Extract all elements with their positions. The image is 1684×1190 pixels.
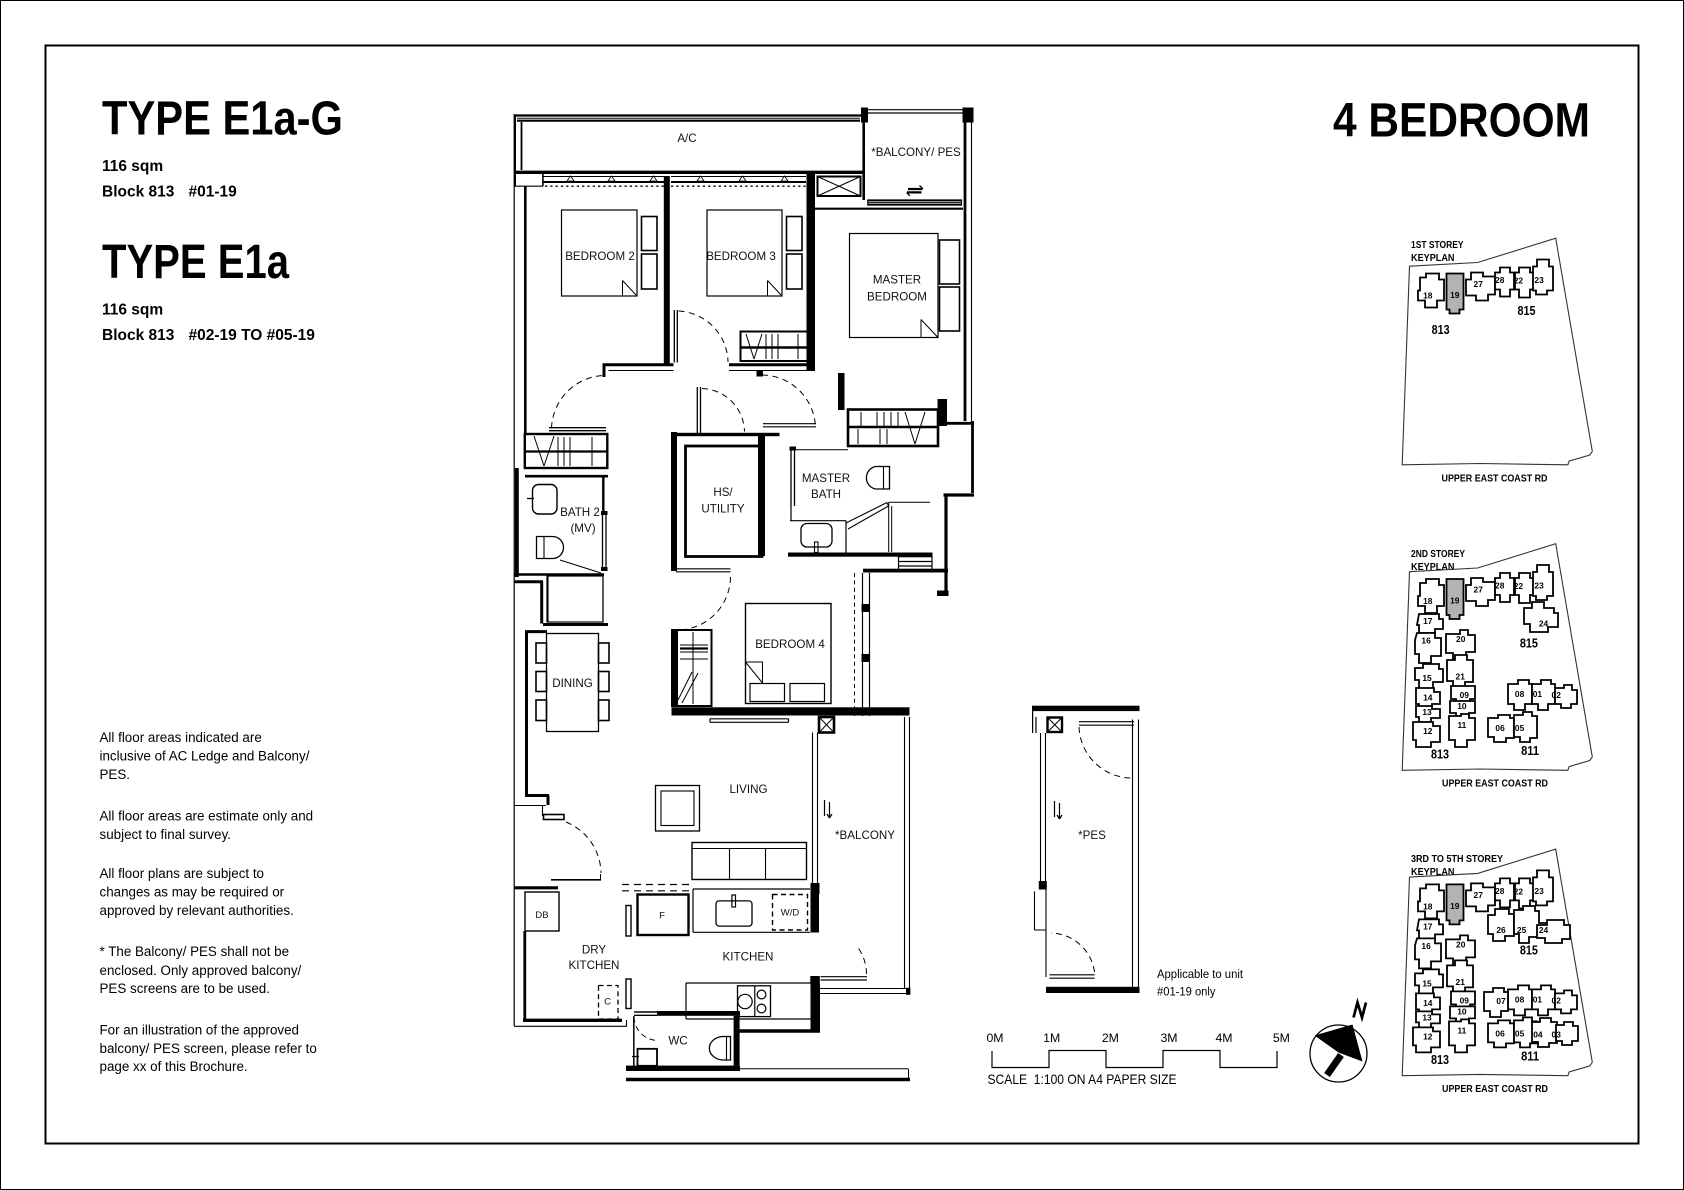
svg-text:*PES: *PES bbox=[1078, 829, 1106, 842]
svg-text:(MV): (MV) bbox=[570, 522, 595, 535]
svg-text:03: 03 bbox=[1552, 1030, 1562, 1040]
svg-text:Applicable to unit: Applicable to unit bbox=[1157, 967, 1244, 981]
svg-text:W/D: W/D bbox=[781, 908, 800, 919]
svg-text:All floor areas are estimate o: All floor areas are estimate only and bbox=[100, 809, 314, 824]
svg-text:4 BEDROOM: 4 BEDROOM bbox=[1333, 94, 1590, 148]
svg-text:enclosed. Only approved balcon: enclosed. Only approved balcony/ bbox=[100, 963, 302, 978]
svg-text:page xx of this Brochure.: page xx of this Brochure. bbox=[100, 1059, 248, 1074]
svg-text:KEYPLAN: KEYPLAN bbox=[1411, 252, 1455, 264]
svg-text:BEDROOM 3: BEDROOM 3 bbox=[706, 250, 776, 263]
svg-text:UTILITY: UTILITY bbox=[701, 503, 744, 516]
svg-text:24: 24 bbox=[1539, 619, 1549, 629]
svg-text:24: 24 bbox=[1539, 925, 1549, 935]
svg-text:811: 811 bbox=[1521, 1050, 1539, 1064]
svg-text:Block 813: Block 813 bbox=[102, 327, 175, 344]
svg-text:UPPER EAST COAST RD: UPPER EAST COAST RD bbox=[1442, 779, 1548, 790]
svg-text:0M: 0M bbox=[986, 1031, 1003, 1045]
svg-text:815: 815 bbox=[1518, 304, 1536, 318]
svg-text:F: F bbox=[659, 911, 665, 922]
svg-text:116 sqm: 116 sqm bbox=[102, 158, 163, 175]
svg-text:WC: WC bbox=[668, 1035, 687, 1048]
svg-text:DB: DB bbox=[535, 910, 548, 921]
svg-text:BEDROOM 4: BEDROOM 4 bbox=[755, 638, 825, 651]
svg-text:2M: 2M bbox=[1102, 1031, 1119, 1045]
svg-text:2ND STOREY: 2ND STOREY bbox=[1411, 548, 1465, 560]
svg-text:TYPE E1a-G: TYPE E1a-G bbox=[102, 93, 343, 146]
svg-text:3RD TO 5TH STOREY: 3RD TO 5TH STOREY bbox=[1411, 853, 1503, 865]
svg-text:subject to final survey.: subject to final survey. bbox=[100, 827, 232, 842]
svg-text:04: 04 bbox=[1533, 1030, 1543, 1040]
svg-text:HS/: HS/ bbox=[713, 486, 733, 499]
svg-text:*BALCONY: *BALCONY bbox=[835, 829, 895, 842]
svg-text:*BALCONY/ PES: *BALCONY/ PES bbox=[871, 146, 961, 159]
svg-text:813: 813 bbox=[1431, 1053, 1449, 1067]
svg-text:For an illustration of the app: For an illustration of the approved bbox=[100, 1023, 300, 1038]
svg-text:* The Balcony/ PES shall not b: * The Balcony/ PES shall not be bbox=[100, 944, 290, 959]
svg-text:26: 26 bbox=[1496, 925, 1506, 935]
svg-text:MASTER: MASTER bbox=[802, 472, 850, 485]
svg-text:PES.: PES. bbox=[100, 767, 131, 782]
svg-text:inclusive of AC Ledge and Balc: inclusive of AC Ledge and Balcony/ bbox=[100, 749, 310, 764]
svg-text:KITCHEN: KITCHEN bbox=[723, 951, 774, 964]
svg-text:approved by relevant authoriti: approved by relevant authorities. bbox=[100, 903, 294, 918]
svg-text:BEDROOM 2: BEDROOM 2 bbox=[565, 250, 635, 263]
svg-text:C: C bbox=[604, 997, 611, 1008]
svg-text:LIVING: LIVING bbox=[729, 783, 767, 796]
svg-text:1ST STOREY: 1ST STOREY bbox=[1411, 239, 1464, 251]
svg-text:07: 07 bbox=[1496, 996, 1506, 1006]
svg-text:SCALE 1:100 ON A4 PAPER SIZE: SCALE 1:100 ON A4 PAPER SIZE bbox=[988, 1072, 1177, 1087]
svg-text:815: 815 bbox=[1520, 637, 1538, 651]
svg-text:changes as may be required or: changes as may be required or bbox=[100, 885, 285, 900]
svg-text:813: 813 bbox=[1432, 323, 1450, 337]
svg-text:815: 815 bbox=[1520, 944, 1538, 958]
svg-text:Block 813: Block 813 bbox=[102, 184, 175, 201]
svg-text:#01-19 only: #01-19 only bbox=[1157, 985, 1216, 999]
svg-text:BATH 2: BATH 2 bbox=[560, 506, 600, 519]
svg-text:25: 25 bbox=[1517, 925, 1527, 935]
svg-text:1M: 1M bbox=[1043, 1031, 1060, 1045]
svg-text:813: 813 bbox=[1431, 748, 1449, 762]
svg-text:All floor areas indicated are: All floor areas indicated are bbox=[100, 730, 262, 745]
svg-text:All floor plans are subject to: All floor plans are subject to bbox=[100, 866, 265, 881]
svg-text:PES screens are to be used.: PES screens are to be used. bbox=[100, 981, 270, 996]
svg-text:DINING: DINING bbox=[552, 677, 593, 690]
svg-text:TYPE E1a: TYPE E1a bbox=[102, 236, 289, 289]
svg-text:balcony/ PES screen, please re: balcony/ PES screen, please refer to bbox=[100, 1041, 317, 1056]
svg-text:UPPER EAST COAST RD: UPPER EAST COAST RD bbox=[1442, 474, 1548, 485]
svg-text:DRY: DRY bbox=[582, 944, 607, 957]
svg-text:5M: 5M bbox=[1273, 1031, 1290, 1045]
svg-text:4M: 4M bbox=[1215, 1031, 1232, 1045]
svg-text:3M: 3M bbox=[1160, 1031, 1177, 1045]
svg-text:KITCHEN: KITCHEN bbox=[569, 959, 620, 972]
svg-text:A/C: A/C bbox=[677, 132, 696, 145]
svg-text:116 sqm: 116 sqm bbox=[102, 302, 163, 319]
svg-text:BATH: BATH bbox=[811, 488, 841, 501]
svg-text:811: 811 bbox=[1521, 744, 1539, 758]
svg-text:MASTER: MASTER bbox=[873, 274, 921, 287]
svg-text:#01-19: #01-19 bbox=[189, 184, 238, 201]
svg-text:BEDROOM: BEDROOM bbox=[867, 291, 927, 304]
svg-text:#02-19 TO #05-19: #02-19 TO #05-19 bbox=[189, 327, 316, 344]
svg-text:UPPER EAST COAST RD: UPPER EAST COAST RD bbox=[1442, 1084, 1548, 1095]
